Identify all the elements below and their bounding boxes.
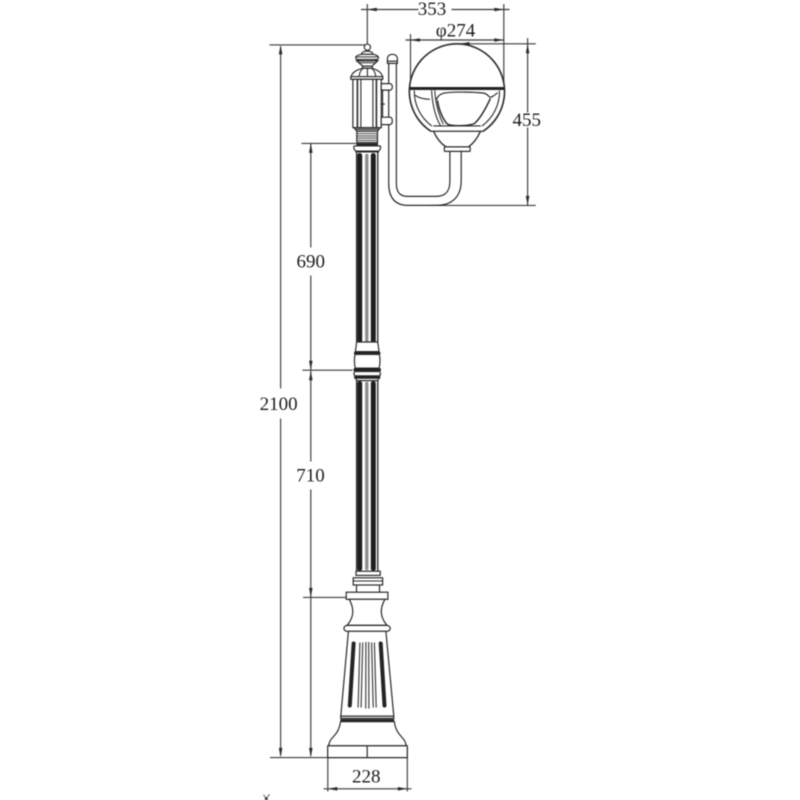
svg-text:710: 710 — [296, 465, 325, 486]
svg-text:228: 228 — [352, 767, 381, 788]
svg-text:φ274: φ274 — [436, 21, 476, 42]
svg-text:690: 690 — [297, 252, 326, 273]
svg-text:353: 353 — [418, 0, 447, 20]
svg-text:455: 455 — [513, 110, 542, 131]
svg-text:2100: 2100 — [260, 394, 298, 415]
